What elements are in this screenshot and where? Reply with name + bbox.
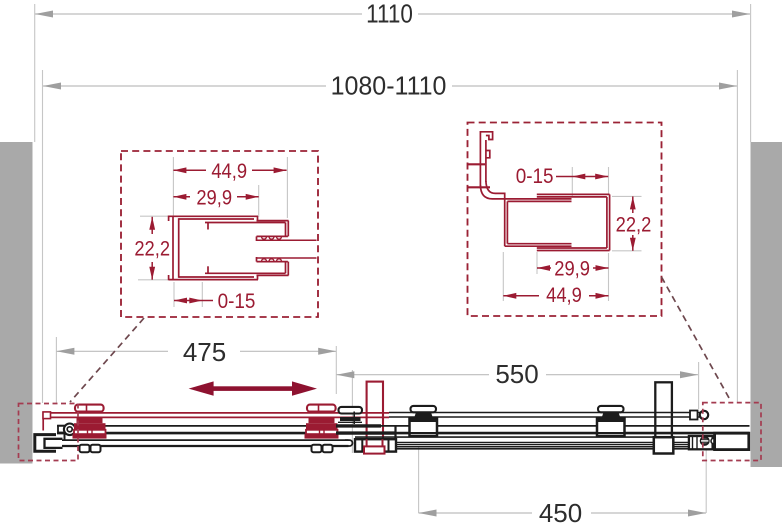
svg-text:550: 550 — [495, 359, 538, 389]
svg-text:22,2: 22,2 — [616, 214, 652, 237]
svg-text:44,9: 44,9 — [546, 284, 582, 307]
svg-text:29,9: 29,9 — [196, 186, 232, 209]
svg-text:0-15: 0-15 — [218, 290, 256, 313]
svg-text:1110: 1110 — [366, 0, 413, 29]
svg-text:0-15: 0-15 — [516, 165, 554, 188]
svg-text:1080-1110: 1080-1110 — [331, 72, 447, 101]
svg-text:22,2: 22,2 — [134, 238, 170, 261]
svg-text:450: 450 — [539, 498, 582, 528]
svg-text:44,9: 44,9 — [211, 160, 247, 183]
svg-text:29,9: 29,9 — [554, 258, 590, 281]
svg-text:475: 475 — [183, 337, 226, 367]
